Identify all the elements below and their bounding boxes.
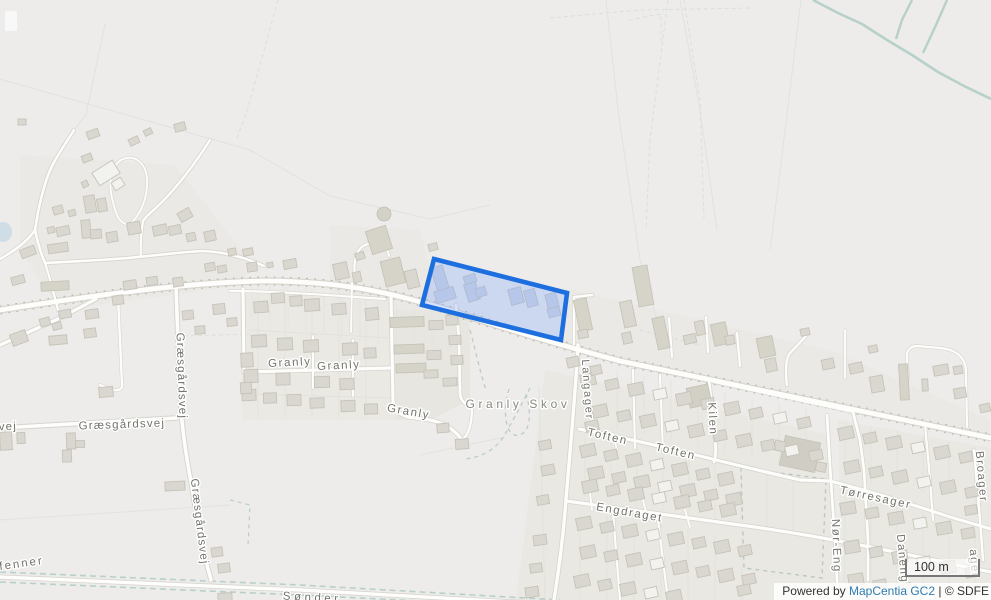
svg-text:Kilen: Kilen [705,402,719,436]
svg-text:Granly: Granly [317,359,361,373]
svg-text:vej: vej [0,421,17,434]
svg-text:Granly: Granly [268,356,312,370]
svg-text:Nør-Eng: Nør-Eng [829,519,843,573]
svg-text:Granly Skov: Granly Skov [466,397,571,411]
